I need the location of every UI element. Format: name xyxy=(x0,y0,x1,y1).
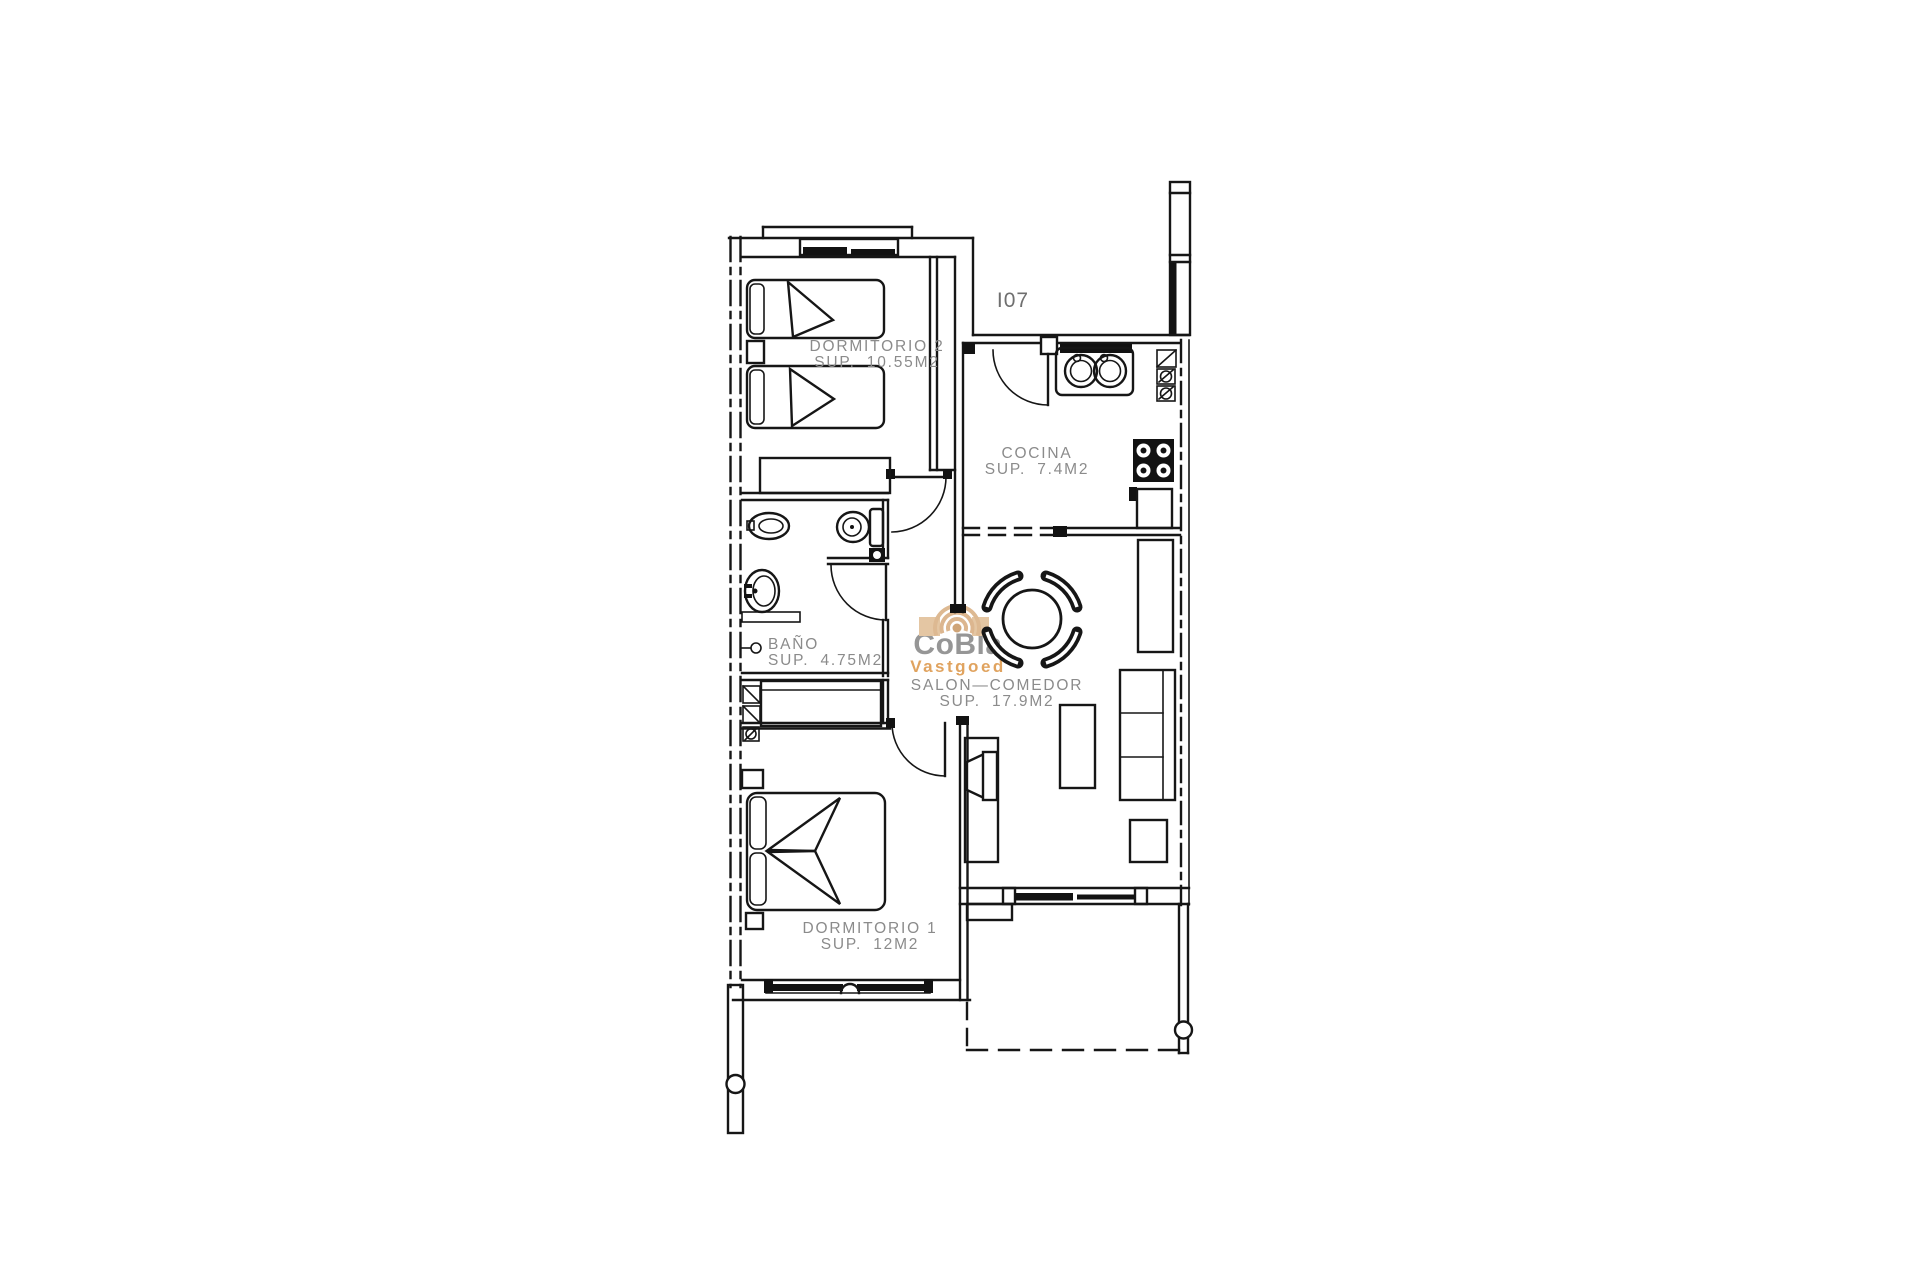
dormitorio1-furniture xyxy=(742,770,885,929)
kitchen-fittings xyxy=(1056,344,1176,528)
dining-table xyxy=(1003,590,1061,648)
salon-furniture xyxy=(965,540,1175,862)
top-right-wall xyxy=(1170,182,1190,335)
dormitorio2-furniture xyxy=(747,280,890,493)
bathroom-fixtures xyxy=(742,509,885,653)
wardrobe xyxy=(743,681,881,741)
doors xyxy=(831,337,1057,776)
floorplan-drawing xyxy=(0,0,1920,1280)
floorplan-page: CoBla Vastgoed xyxy=(0,0,1920,1280)
dormitorio2-window xyxy=(763,227,912,255)
